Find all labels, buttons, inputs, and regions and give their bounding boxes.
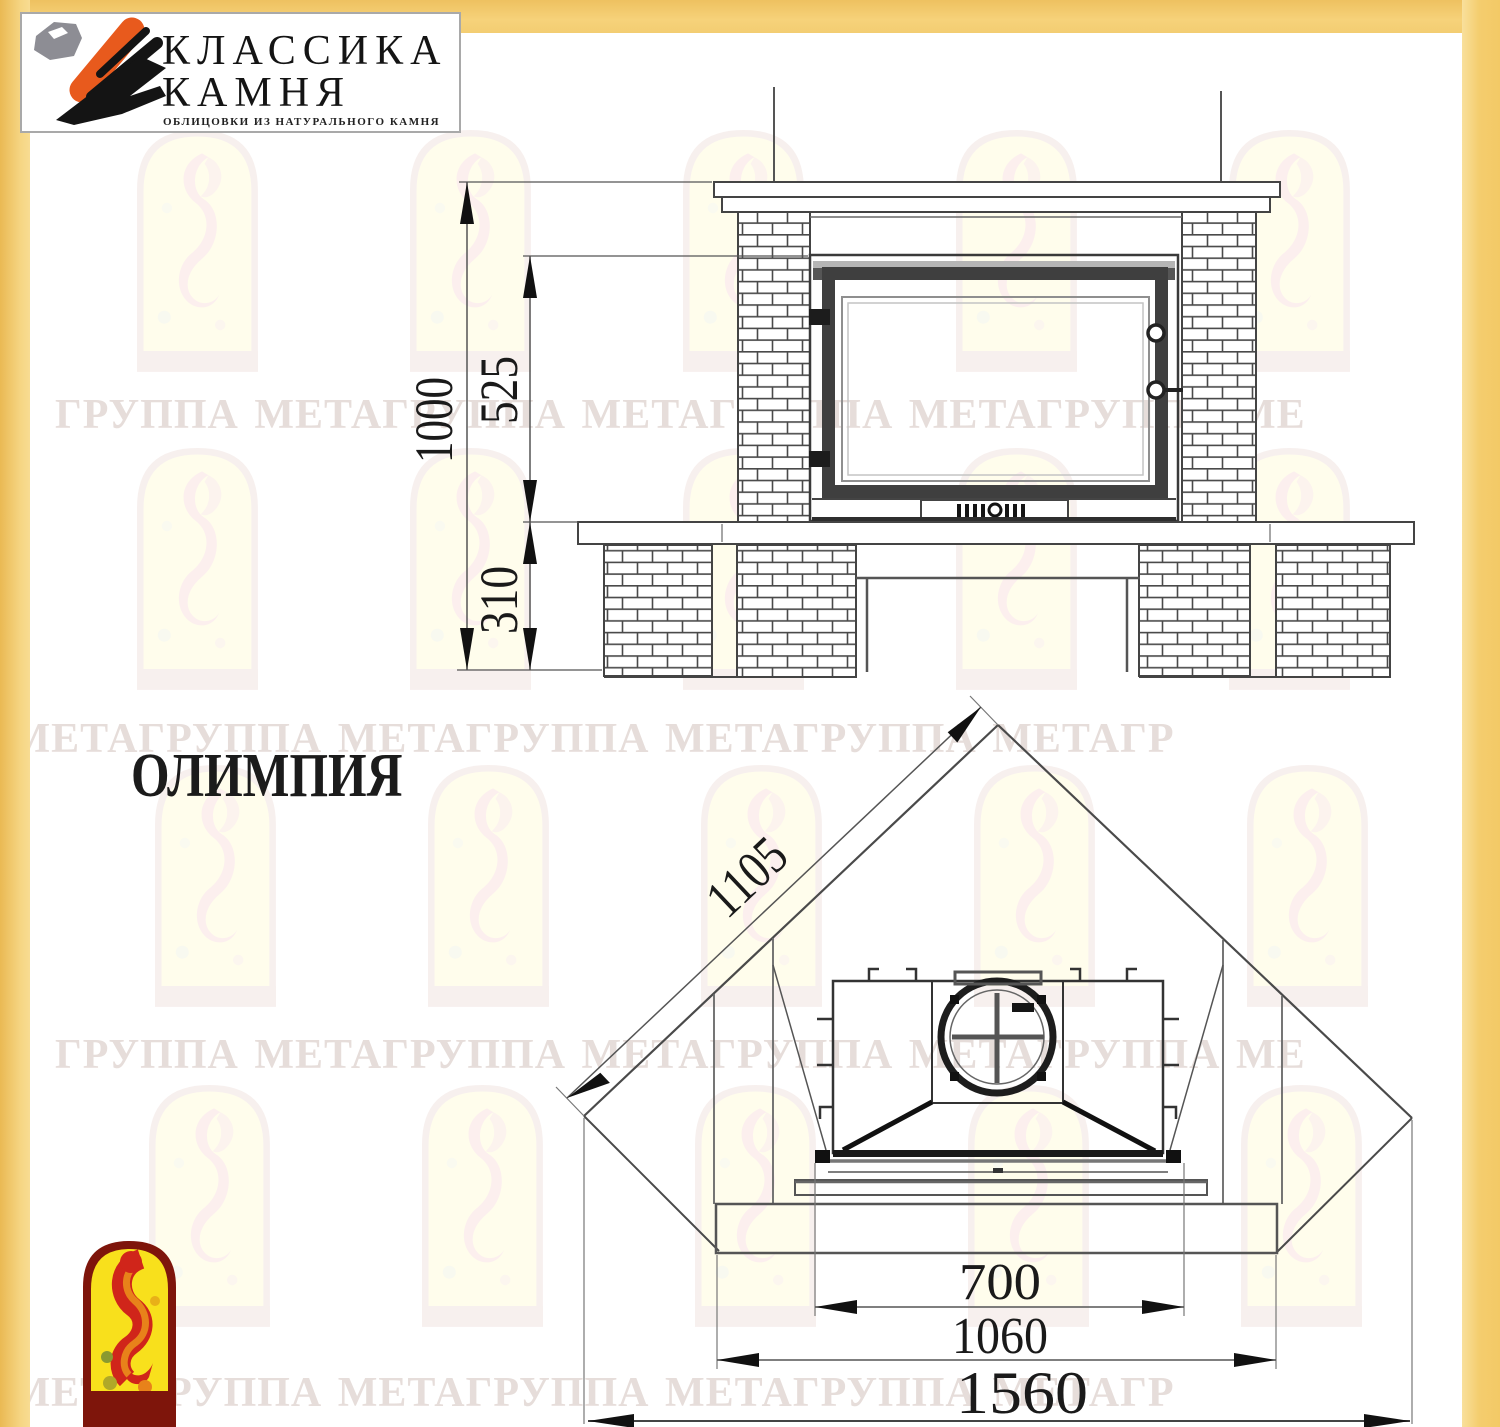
svg-text:КАМНЯ: КАМНЯ xyxy=(162,70,351,116)
svg-text:КЛАССИКА: КЛАССИКА xyxy=(162,28,447,74)
svg-text:1560: 1560 xyxy=(956,1360,1088,1426)
svg-text:700: 700 xyxy=(959,1254,1041,1311)
svg-text:1000: 1000 xyxy=(404,377,464,463)
svg-text:525: 525 xyxy=(469,356,529,424)
svg-text:1060: 1060 xyxy=(952,1308,1048,1365)
svg-text:ОБЛИЦОВКИ ИЗ НАТУРАЛЬНОГО КАМН: ОБЛИЦОВКИ ИЗ НАТУРАЛЬНОГО КАМНЯ xyxy=(163,116,440,128)
svg-text:1105: 1105 xyxy=(694,825,799,929)
svg-text:310: 310 xyxy=(469,566,529,634)
